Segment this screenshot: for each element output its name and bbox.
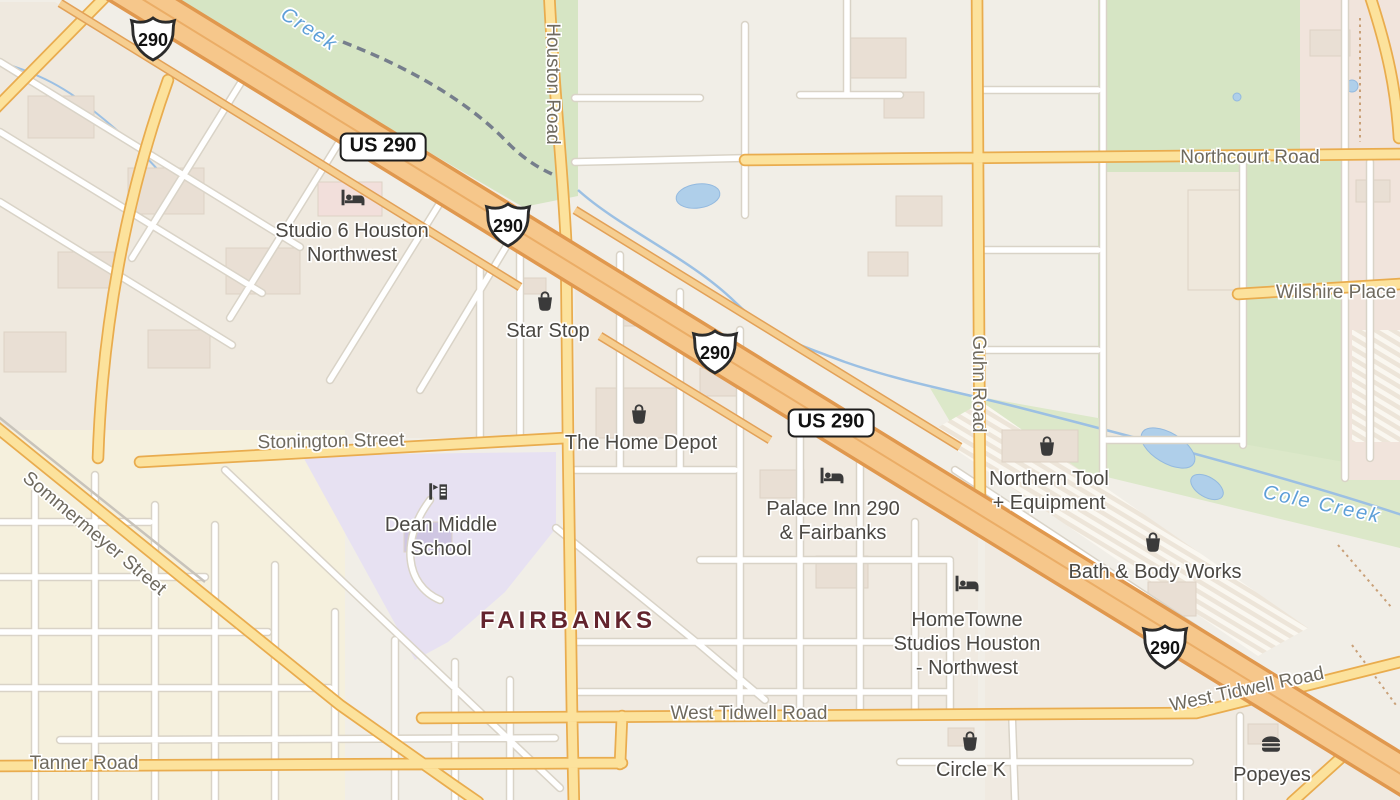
water-label: Cole Creek (1261, 481, 1383, 528)
route-number-box: US 290 (788, 409, 875, 438)
bed-icon[interactable] (819, 466, 846, 487)
district-label: FAIRBANKS (480, 607, 656, 635)
road-label: Wilshire Place (1276, 282, 1396, 304)
us-route-shield: 290 (129, 16, 177, 62)
road-label: Sommermeyer Street (18, 468, 170, 601)
us-route-shield: 290 (691, 329, 739, 375)
northern-tool-equipment-label[interactable]: Northern Tool + Equipment (989, 467, 1109, 515)
school-icon[interactable] (426, 480, 450, 504)
svg-text:290: 290 (138, 30, 168, 50)
shopping-bag-icon[interactable] (958, 729, 982, 753)
svg-text:290: 290 (700, 343, 730, 363)
svg-text:290: 290 (1150, 638, 1180, 658)
us-route-shield: 290 (484, 202, 532, 248)
palace-inn-290-fairbanks-label[interactable]: Palace Inn 290 & Fairbanks (766, 497, 899, 545)
shopping-bag-icon[interactable] (1141, 530, 1165, 554)
star-stop-label[interactable]: Star Stop (506, 319, 589, 343)
shopping-bag-icon[interactable] (533, 289, 557, 313)
road-label: Guhn Road (967, 335, 989, 432)
popeyes-label[interactable]: Popeyes (1233, 763, 1311, 787)
road-label: Northcourt Road (1180, 147, 1319, 169)
svg-text:290: 290 (493, 216, 523, 236)
water-label: Creek (276, 3, 342, 57)
labels-layer: Studio 6 Houston Northwest Star Stop The… (0, 0, 1400, 800)
hometowne-studios-houston-northwest-label[interactable]: HomeTowne Studios Houston - Northwest (894, 608, 1041, 680)
shopping-bag-icon[interactable] (1035, 434, 1059, 458)
bath-and-body-works-label[interactable]: Bath & Body Works (1068, 560, 1241, 584)
road-label: Tanner Road (30, 753, 139, 775)
road-label: Houston Road (541, 23, 563, 144)
studio-6-houston-northwest-label[interactable]: Studio 6 Houston Northwest (275, 219, 428, 267)
circle-k-label[interactable]: Circle K (936, 758, 1006, 782)
route-number-box: US 290 (340, 133, 427, 162)
us-route-shield: 290 (1141, 624, 1189, 670)
road-label: West Tidwell Road (671, 703, 828, 725)
the-home-depot-label[interactable]: The Home Depot (565, 431, 717, 455)
bed-icon[interactable] (340, 188, 367, 209)
road-label: Stonington Street (257, 430, 404, 455)
shopping-bag-icon[interactable] (627, 402, 651, 426)
map[interactable]: Studio 6 Houston Northwest Star Stop The… (0, 0, 1400, 800)
burger-icon[interactable] (1259, 732, 1283, 756)
bed-icon[interactable] (954, 574, 981, 595)
road-label: West Tidwell Road (1168, 663, 1326, 717)
dean-middle-school-label[interactable]: Dean Middle School (385, 513, 497, 561)
